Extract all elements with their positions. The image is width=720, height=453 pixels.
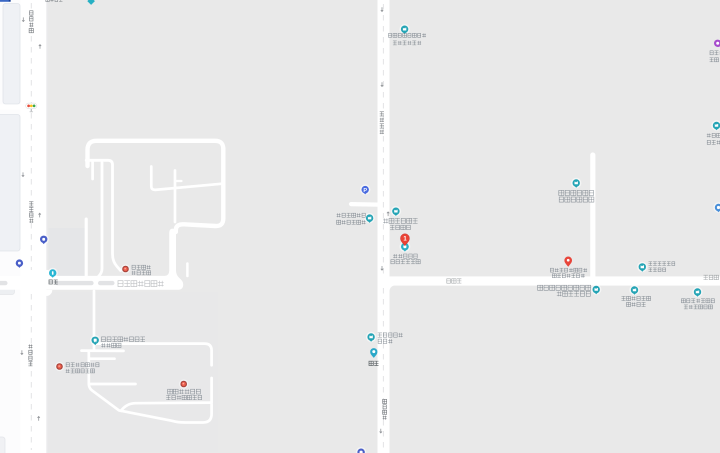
svg-text:P: P: [363, 188, 367, 194]
